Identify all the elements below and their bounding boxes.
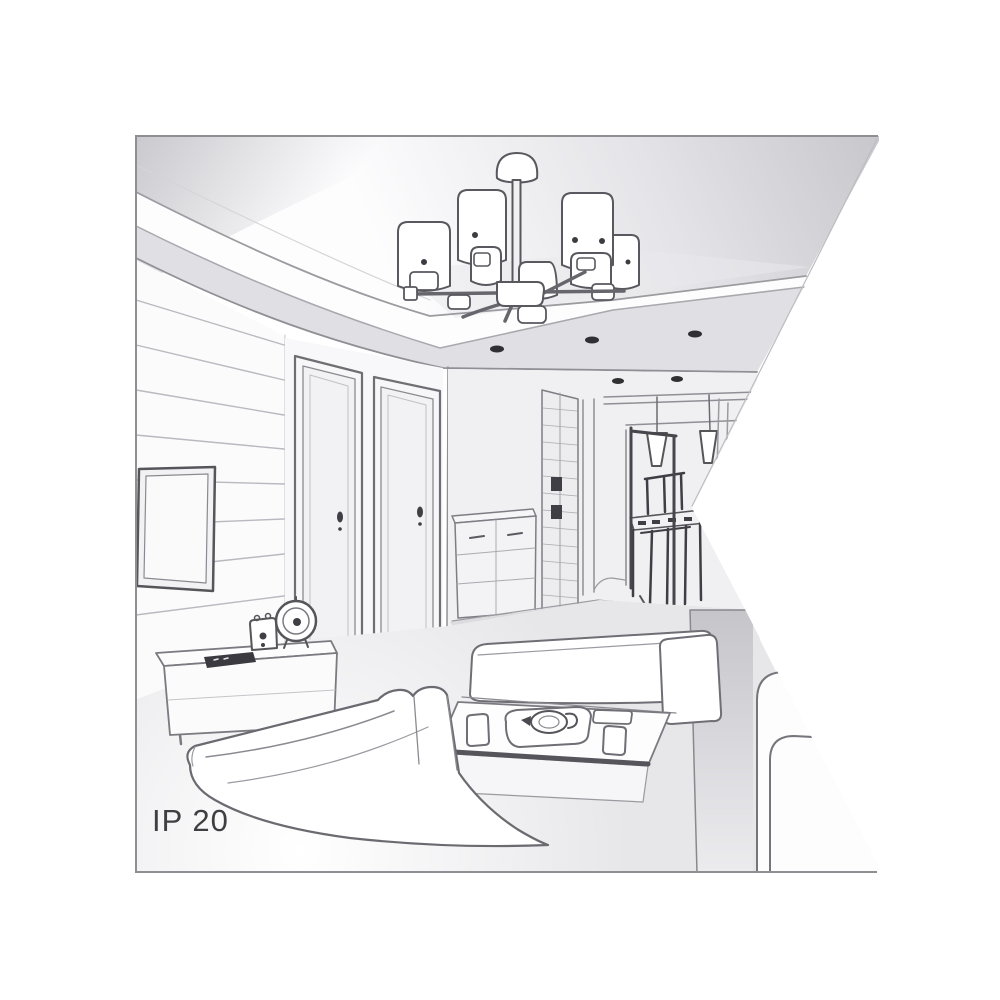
living-room-sketch bbox=[0, 0, 1000, 1000]
door-handle bbox=[337, 512, 343, 523]
speaker bbox=[250, 614, 277, 651]
ip-rating-label: IP 20 bbox=[152, 803, 229, 839]
cup bbox=[467, 714, 489, 746]
hallway-dresser bbox=[452, 509, 536, 618]
door-right bbox=[374, 377, 444, 666]
wall-tv bbox=[137, 467, 215, 591]
hallway-spotlight bbox=[612, 378, 624, 384]
coffee-table bbox=[437, 697, 676, 802]
right-sofa bbox=[757, 672, 878, 873]
wall-corner bbox=[447, 367, 448, 628]
cup bbox=[603, 726, 626, 755]
chandelier-hub bbox=[497, 282, 544, 306]
chandelier-canopy bbox=[497, 153, 537, 183]
tea-set bbox=[505, 707, 591, 747]
chaise-armrest bbox=[660, 635, 721, 724]
product-illustration-canvas: IP 20 bbox=[0, 0, 1000, 1000]
door-handle bbox=[417, 507, 423, 518]
wardrobe bbox=[542, 390, 578, 613]
hallway-spotlight bbox=[671, 376, 683, 382]
tray bbox=[593, 710, 632, 724]
